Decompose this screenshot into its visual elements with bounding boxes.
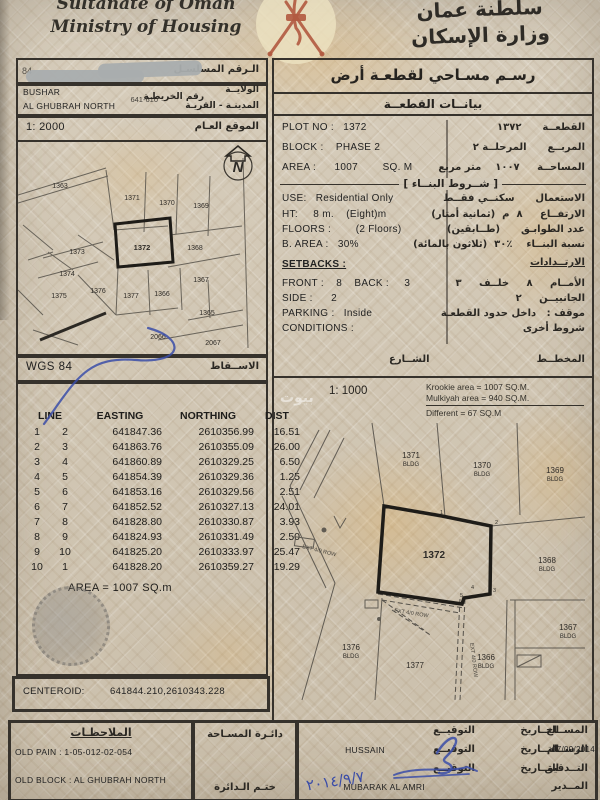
plot-label-1371: 1371 — [124, 195, 140, 202]
plot-sublabel-1369: BLDG — [547, 477, 564, 483]
document-title-box: رسـم مسـاحي لقطعـة أرض — [272, 58, 594, 94]
survey-dept-box: دائـرة المسـاحة ختـم الـدائرة — [192, 720, 298, 800]
plot-label-1373: 1373 — [69, 249, 85, 256]
detail-map-box: 1: 1000 Krookie area = 1007 SQ.M. Mulkiy… — [272, 376, 594, 722]
plot-no-ar: القطعــة ١٣٧٢ — [497, 122, 585, 133]
barea-ar: نسبة البنــاء ٪٣٠ (ثلاثون بالمائة) — [413, 239, 585, 250]
plot-label-1368: 1368 — [187, 245, 203, 252]
photo-edge-shadow — [0, 0, 10, 320]
location-box: BUSHAR AL GHUBRAH NORTH 641-610 رقم الخر… — [16, 82, 268, 118]
barea-en: B. AREA : 30% — [282, 239, 359, 250]
plot-label-1376: 1376 — [90, 288, 106, 295]
plot-sublabel-1367: BLDG — [560, 634, 577, 640]
plot-label-1370: 1370 — [473, 461, 491, 470]
sig-label: التوقيــع — [433, 763, 475, 774]
old-pain: OLD PAIN : 1-05-012-02-054 — [15, 747, 132, 757]
coord-row: 23641863.762610355.0926.00 — [22, 441, 262, 456]
plot-label-1366: 1366 — [154, 291, 170, 298]
plot-label-1374: 1374 — [59, 271, 75, 278]
col-line: LINE — [22, 410, 78, 422]
vertex-label-1: 1 — [440, 510, 443, 516]
building-conditions-header: [ شــروط البنــاء ] — [399, 178, 502, 190]
wilaya-value: BUSHAR — [23, 87, 60, 97]
dept-label: دائـرة المسـاحة — [195, 723, 295, 740]
title-en-line1: Sultanate of Oman — [28, 0, 264, 16]
sig-label: التوقيــع — [433, 725, 475, 736]
projection-label: الاســقاط — [210, 361, 259, 372]
centeroid-value: 641844.210,2610343.228 — [110, 686, 225, 697]
vertex-label-5: 5 — [460, 593, 463, 599]
plot-sublabel-1370: BLDG — [474, 472, 491, 478]
svg-text:N: N — [233, 159, 245, 176]
front-back-ar: الأمــام ٨ خلــف ٣ — [456, 278, 585, 289]
floors-en: FLOORS : (2 Floors) — [282, 224, 401, 235]
ht-en: HT: 8 m. (Eight)m — [282, 209, 386, 220]
plot-label-1371: 1371 — [402, 451, 420, 460]
plot-label-1376: 1376 — [342, 643, 360, 652]
draftsman-date: 07/09/2014 — [552, 745, 595, 754]
coord-row: 101641828.202610359.2719.29 — [22, 561, 262, 576]
area-ar: المساحــة ١٠٠٧ متر مربع — [438, 162, 585, 173]
plot-label-1369: 1369 — [546, 466, 564, 475]
plot-label-1372: 1372 — [423, 550, 446, 561]
side-en: SIDE : 2 — [282, 293, 337, 304]
old-block: OLD BLOCK : AL GHUBRAH NORTH — [15, 775, 166, 785]
coord-row: 45641854.392610329.361.25 — [22, 471, 262, 486]
plot-label-1377: 1377 — [406, 661, 424, 670]
vertex-label-2: 2 — [495, 520, 498, 526]
coord-row: 34641860.892610329.256.50 — [22, 456, 262, 471]
plot-label-1372: 1372 — [134, 243, 151, 252]
centeroid-label: CENTEROID: — [23, 686, 85, 697]
plot-label-1377: 1377 — [123, 293, 139, 300]
title-en-line2: Ministry of Housing — [28, 16, 264, 39]
coord-row: 89641824.932610331.492.50 — [22, 531, 262, 546]
coord-row: 56641853.162610329.562.51 — [22, 486, 262, 501]
coord-table-rows: 12641847.362610356.9916.5123641863.76261… — [22, 426, 262, 576]
coord-row: 67641852.522610327.1324.01 — [22, 501, 262, 516]
embossed-seal — [27, 581, 115, 671]
plot-sublabel-1368: BLDG — [539, 567, 556, 573]
coord-row: 12641847.362610356.9916.51 — [22, 426, 262, 441]
stamp-label: ختـم الـدائرة — [195, 782, 295, 793]
town-value: AL GHUBRAH NORTH — [23, 101, 115, 111]
coord-row: 910641825.202610333.9725.47 — [22, 546, 262, 561]
general-location-map: N 13631371137013691372136813731374137513… — [18, 140, 262, 352]
role-director: المــدير — [552, 781, 588, 792]
plot-label-1368: 1368 — [538, 556, 556, 565]
coord-row: 78641828.802610330.873.93 — [22, 516, 262, 531]
conditions-ar: شروط أخرى — [523, 323, 585, 334]
scanned-survey-document: Sultanate of Oman Ministry of Housing سل… — [0, 0, 600, 800]
floors-ar: عدد الطوابـق (طــابقين) — [447, 224, 585, 235]
detail-plot-map: EXT 4/0 ROW EXT 4/0 ROW EXT 4/0 ROW 1371… — [274, 378, 588, 716]
plot-label-1367: 1367 — [559, 623, 577, 632]
road-label: EXT 4/0 ROW — [302, 544, 338, 558]
col-northing: NORTHING — [162, 410, 254, 422]
plot-label-2066: 2066 — [150, 334, 166, 341]
town-label: المدينـة - القريـة — [185, 101, 259, 111]
setbacks-ar: الارتــدادات — [530, 257, 585, 268]
area-en: AREA : 1007 SQ. M — [282, 162, 412, 173]
parking-en: PARKING : Inside — [282, 308, 372, 319]
side-ar: الجانبيــن ٢ — [516, 293, 585, 304]
wilaya-label: الولايــة — [225, 85, 259, 95]
centeroid-box: CENTEROID: 641844.210,2610343.228 — [12, 676, 270, 712]
notes-label: الملاحظـات — [11, 723, 191, 739]
projection-value: WGS 84 — [26, 361, 72, 373]
general-map-scale: 1: 2000 — [26, 121, 65, 133]
col-easting: EASTING — [78, 410, 162, 422]
ht-ar: الارتفــاع ٨ م (ثمانية أمتار) — [431, 209, 585, 220]
plot-label-1367: 1367 — [193, 277, 209, 284]
plot-sublabel-1371: BLDG — [403, 462, 420, 468]
setbacks-en: SETBACKS : — [282, 259, 346, 270]
use-ar: الاستعمال سكنــي فقــط — [443, 193, 585, 204]
notes-box: الملاحظـات OLD PAIN : 1-05-012-02-054 OL… — [8, 720, 194, 800]
general-map-header: 1: 2000 الموقع العـام — [18, 116, 266, 142]
plot-label-1370: 1370 — [159, 200, 175, 207]
block-en: BLOCK : PHASE 2 — [282, 142, 380, 153]
plan-label: المخطــط — [537, 354, 585, 365]
draftsman-name: HUSSAIN — [345, 745, 385, 755]
ministry-title-en: Sultanate of Oman Ministry of Housing — [28, 0, 264, 39]
plot-label-2067: 2067 — [205, 340, 221, 347]
plot-label-1375: 1375 — [51, 293, 67, 300]
plot-no-en: PLOT NO : 1372 — [282, 122, 367, 133]
sig-label: التوقيــع — [433, 744, 475, 755]
front-back-en: FRONT : 8 BACK : 3 — [282, 278, 410, 289]
coordinates-box: LINE EASTING NORTHING DIST 12641847.3626… — [16, 380, 268, 676]
ministry-title-ar: سلطنة عمان وزارة الإسكان — [367, 0, 593, 52]
north-arrow-icon: N — [224, 146, 252, 180]
plot-data-box: بيانــات القطعــة PLOT NO : 1372 القطعــ… — [272, 92, 594, 378]
coord-table-header: LINE EASTING NORTHING DIST — [22, 410, 262, 422]
use-en: USE: Residential Only — [282, 193, 393, 204]
plot-label-1365: 1365 — [199, 310, 215, 317]
date-label: التــاريخ — [520, 763, 559, 774]
street-label: الشــارع — [389, 354, 430, 365]
vertex-label-4: 4 — [471, 585, 474, 591]
plot-sublabel-1376: BLDG — [343, 654, 360, 660]
plot-sublabel-1366: BLDG — [478, 664, 495, 670]
document-title: رسـم مسـاحي لقطعـة أرض — [274, 60, 592, 84]
road-label: EXT 4/0 ROW — [394, 608, 430, 619]
conditions-en: CONDITIONS : — [282, 323, 354, 334]
plot-label-1369: 1369 — [193, 203, 209, 210]
plot-label-1366: 1366 — [477, 653, 495, 662]
parking-ar: موقف : داخل حدود القطعـة — [441, 308, 585, 319]
vertex-label-3: 3 — [493, 588, 496, 594]
block-ar: المربــع المرحلــة ٢ — [473, 142, 585, 153]
plot-info-header: بيانــات القطعــة — [274, 94, 592, 116]
date-label: التــاريخ — [520, 725, 559, 736]
general-map-label: الموقع العـام — [195, 121, 259, 132]
plot-label-1363: 1363 — [52, 183, 68, 190]
watermark: بيوت — [280, 390, 314, 406]
general-location-map-box: 1: 2000 الموقع العـام N — [16, 114, 268, 358]
